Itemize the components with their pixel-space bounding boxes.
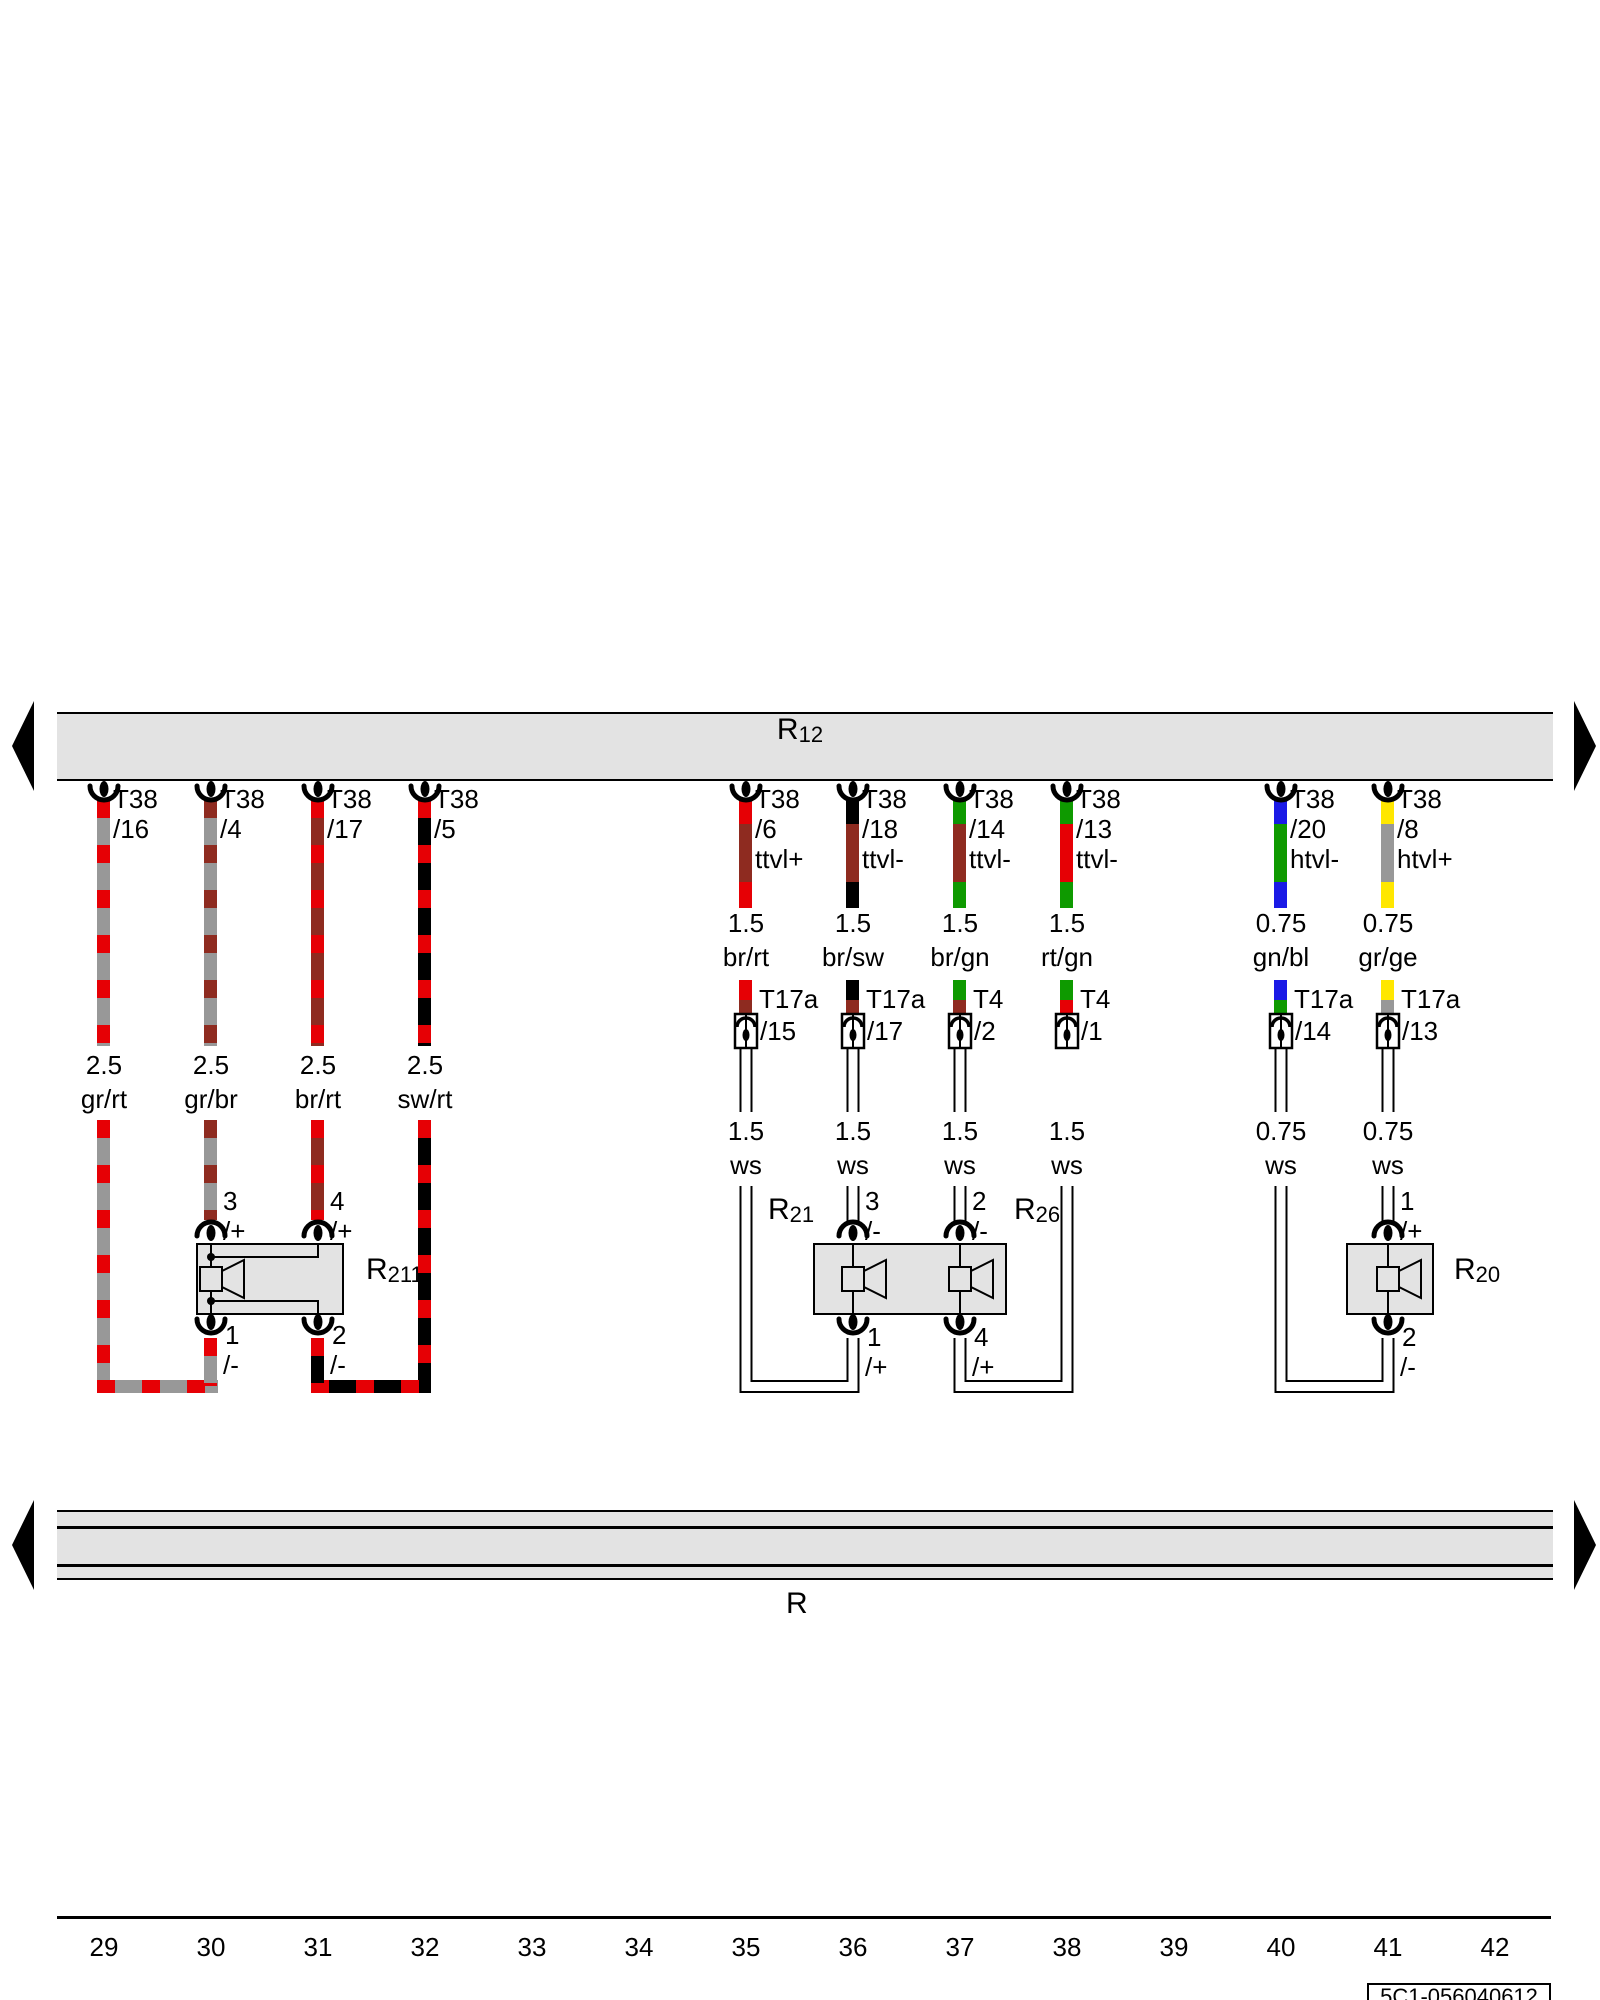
connector-pin-label: /13	[1402, 1016, 1438, 1046]
speaker-r211	[196, 1243, 344, 1315]
terminal-connector-icon	[943, 1312, 977, 1342]
wire-sw-rt-run	[311, 1380, 431, 1393]
terminal-sign: /+	[223, 1216, 245, 1246]
wire-br-rt-stub	[739, 800, 752, 908]
wire-gr-ge-stub	[1381, 980, 1394, 1014]
inline-connector-icon	[840, 1012, 866, 1052]
ws-color-label: ws	[1022, 1150, 1112, 1180]
connector-label: T17a	[866, 984, 925, 1014]
terminal-number: 1	[867, 1322, 881, 1352]
tap-label-t38-20: T38/20htvl-	[1290, 784, 1339, 874]
terminal-sign: /-	[972, 1216, 988, 1246]
ws-color-label: ws	[808, 1150, 898, 1180]
terminal-sign: /+	[1400, 1216, 1422, 1246]
inline-connector-icon	[947, 1012, 973, 1052]
wire-gauge-label: 0.75	[1236, 908, 1326, 938]
ws-gauge-label: 1.5	[915, 1116, 1005, 1146]
wire-gauge-label: 1.5	[915, 908, 1005, 938]
ws-gauge-label: 1.5	[808, 1116, 898, 1146]
wire-gr-rt-run	[97, 1380, 218, 1393]
tap-label-t38-5: T38/5	[434, 784, 479, 844]
wire-gauge-label: 0.75	[1343, 908, 1433, 938]
tap-label-t38-17: T38/17	[327, 784, 372, 844]
connector-label: T17a	[1294, 984, 1353, 1014]
inline-connector-icon	[1375, 1012, 1401, 1052]
terminal-number: 3	[223, 1186, 237, 1216]
wire-color-label: sw/rt	[380, 1084, 470, 1114]
ws-gauge-label: 0.75	[1343, 1116, 1433, 1146]
speaker-r20	[1346, 1243, 1434, 1315]
inline-connector-icon	[1054, 1012, 1080, 1052]
speaker-r21-r26	[813, 1243, 1007, 1315]
wire-color-label: br/sw	[808, 942, 898, 972]
wire-gauge-label: 2.5	[273, 1050, 363, 1080]
tap-label-t38-6: T38/6ttvl+	[755, 784, 803, 874]
connector-pin-label: /17	[867, 1016, 903, 1046]
wire-gr-rt	[97, 800, 110, 1046]
inline-connector-icon	[733, 1012, 759, 1052]
connector-pin-label: /15	[760, 1016, 796, 1046]
wire-br-sw-stub	[846, 800, 859, 908]
wire-rt-gn-stub	[1060, 980, 1073, 1014]
wire-color-label: br/rt	[701, 942, 791, 972]
wire-gauge-label: 2.5	[59, 1050, 149, 1080]
wire-color-label: br/gn	[915, 942, 1005, 972]
connector-pin-label: /2	[974, 1016, 996, 1046]
terminal-number: 2	[1402, 1322, 1416, 1352]
connector-label: T17a	[759, 984, 818, 1014]
wire-rt-gn-stub	[1060, 800, 1073, 908]
terminal-sign: /-	[865, 1216, 881, 1246]
ws-color-label: ws	[701, 1150, 791, 1180]
wire-color-label: gr/rt	[59, 1084, 149, 1114]
terminal-sign: /-	[330, 1350, 346, 1380]
wire-color-label: gn/bl	[1236, 942, 1326, 972]
component-label-r20: R20	[1454, 1254, 1500, 1288]
wire-gr-br	[204, 800, 217, 1046]
wire-gn-bl-stub	[1274, 980, 1287, 1014]
terminal-connector-icon	[1371, 1312, 1405, 1342]
terminal-sign: /+	[330, 1216, 352, 1246]
terminal-connector-icon	[836, 1312, 870, 1342]
terminal-number: 2	[332, 1320, 346, 1350]
terminal-number: 4	[974, 1322, 988, 1352]
wire-gr-ge-stub	[1381, 800, 1394, 908]
terminal-number: 4	[330, 1186, 344, 1216]
ws-gauge-label: 1.5	[1022, 1116, 1112, 1146]
component-label-r211: R211	[366, 1254, 423, 1288]
wire-gauge-label: 1.5	[701, 908, 791, 938]
terminal-number: 1	[225, 1320, 239, 1350]
wire-gauge-label: 2.5	[380, 1050, 470, 1080]
wire-sw-rt-stub	[311, 1338, 324, 1386]
terminal-sign: /+	[972, 1352, 994, 1382]
wire-br-sw-stub	[846, 980, 859, 1014]
ws-color-label: ws	[1343, 1150, 1433, 1180]
wire-br-rt	[311, 800, 324, 1046]
wire-br-gn-stub	[953, 800, 966, 908]
wiring-diagram-page: R12 R	[0, 0, 1600, 2000]
wire-br-rt-stub	[739, 980, 752, 1014]
terminal-number: 2	[972, 1186, 986, 1216]
connector-pin-label: /1	[1081, 1016, 1103, 1046]
wire-gr-rt-stub	[204, 1338, 217, 1386]
terminal-connector-icon	[301, 1312, 335, 1342]
tap-label-t38-14: T38/14ttvl-	[969, 784, 1014, 874]
connector-pin-label: /14	[1295, 1016, 1331, 1046]
terminal-number: 3	[865, 1186, 879, 1216]
tap-label-t38-4: T38/4	[220, 784, 265, 844]
tap-label-t38-18: T38/18ttvl-	[862, 784, 907, 874]
terminal-sign: /-	[1400, 1352, 1416, 1382]
terminal-sign: /+	[865, 1352, 887, 1382]
wire-color-label: rt/gn	[1022, 942, 1112, 972]
connector-label: T4	[1080, 984, 1110, 1014]
wire-gr-br	[204, 1120, 217, 1220]
wire-color-label: br/rt	[273, 1084, 363, 1114]
wire-gn-bl-stub	[1274, 800, 1287, 908]
wire-sw-rt	[418, 800, 431, 1046]
wire-gauge-label: 1.5	[1022, 908, 1112, 938]
connector-label: T4	[973, 984, 1003, 1014]
ws-gauge-label: 1.5	[701, 1116, 791, 1146]
wire-gauge-label: 2.5	[166, 1050, 256, 1080]
wire-color-label: gr/ge	[1343, 942, 1433, 972]
terminal-connector-icon	[194, 1312, 228, 1342]
ws-gauge-label: 0.75	[1236, 1116, 1326, 1146]
connector-label: T17a	[1401, 984, 1460, 1014]
tap-label-t38-13: T38/13ttvl-	[1076, 784, 1121, 874]
component-label-r21: R21	[768, 1194, 814, 1228]
tap-label-t38-16: T38/16	[113, 784, 158, 844]
wire-br-rt	[311, 1120, 324, 1220]
component-label-r26: R26	[1014, 1194, 1060, 1228]
ws-color-label: ws	[1236, 1150, 1326, 1180]
wire-gr-rt	[97, 1120, 110, 1393]
wire-br-gn-stub	[953, 980, 966, 1014]
terminal-sign: /-	[223, 1350, 239, 1380]
ws-color-label: ws	[915, 1150, 1005, 1180]
wire-color-label: gr/br	[166, 1084, 256, 1114]
tap-label-t38-8: T38/8htvl+	[1397, 784, 1453, 874]
inline-connector-icon	[1268, 1012, 1294, 1052]
wire-gauge-label: 1.5	[808, 908, 898, 938]
terminal-number: 1	[1400, 1186, 1414, 1216]
